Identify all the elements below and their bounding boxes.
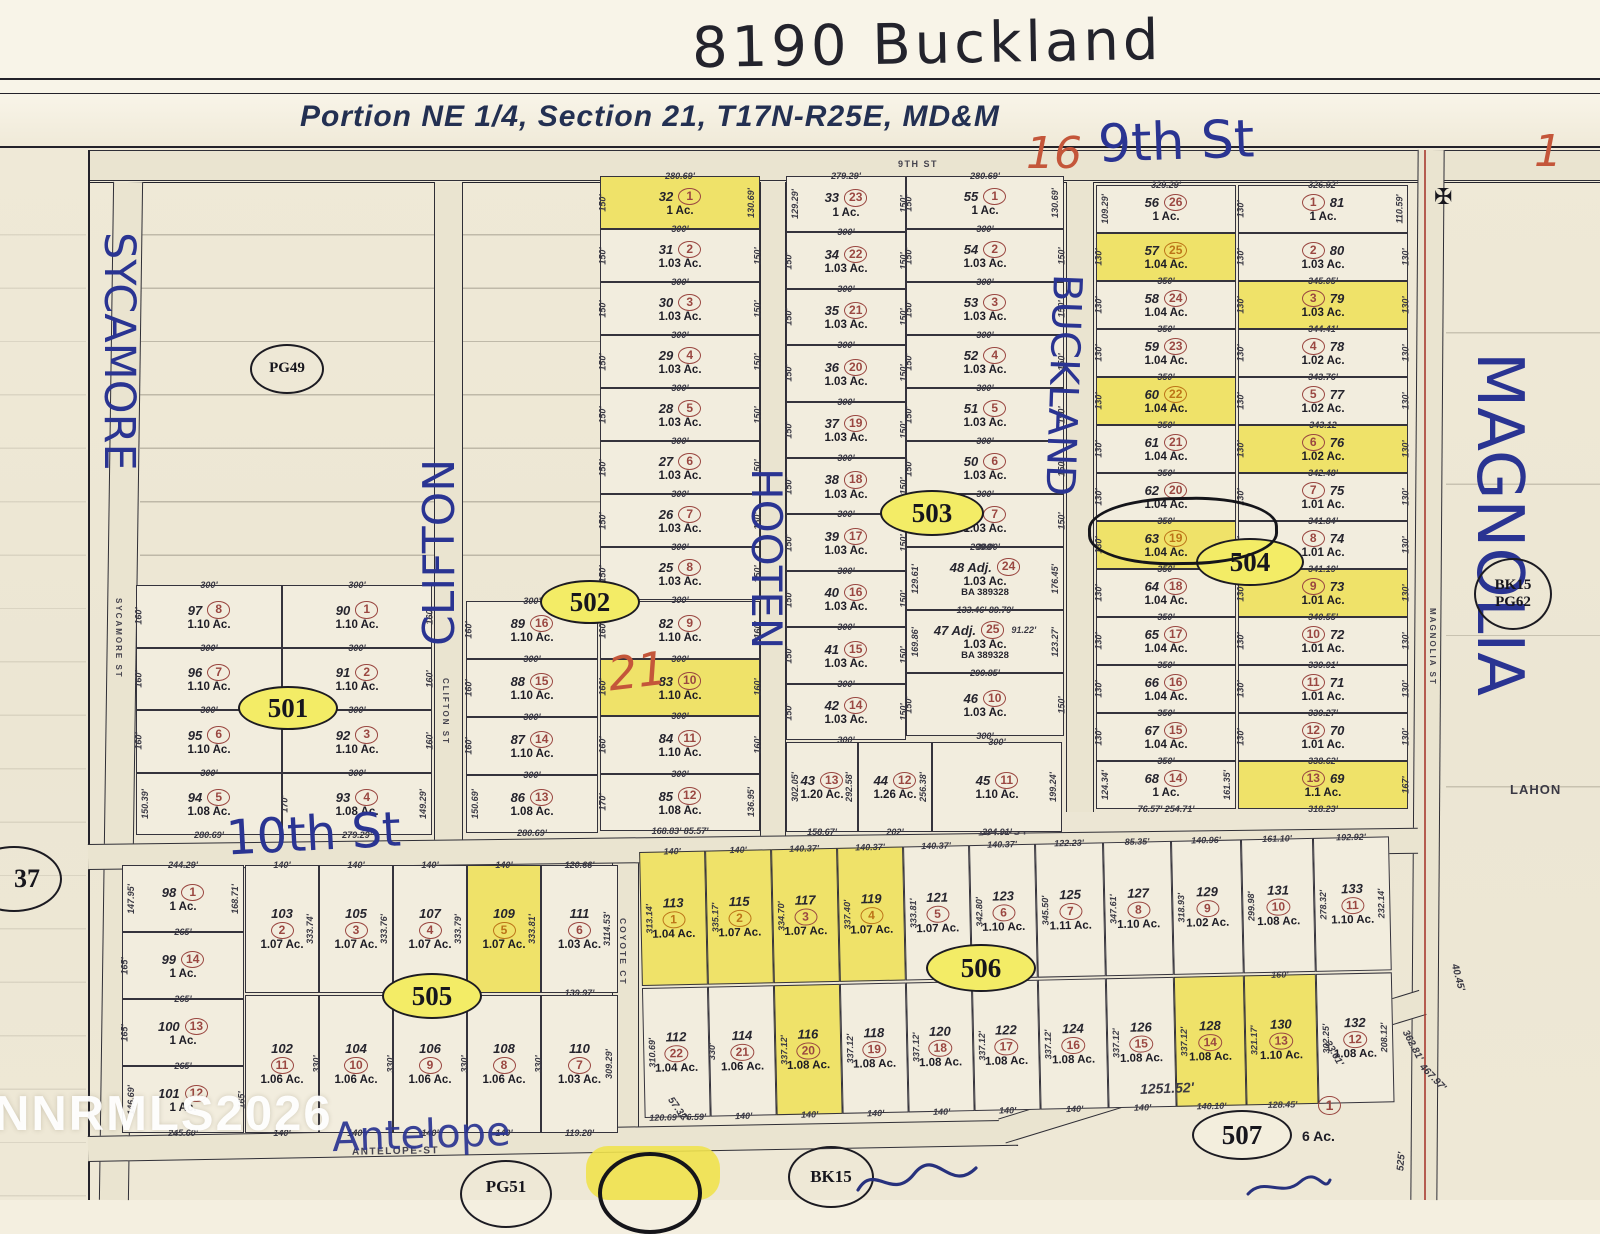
lot-parcel-120: 140'337.12'120181.08 Ac. xyxy=(906,981,975,1112)
block-oval-507: 507 xyxy=(1192,1110,1292,1160)
lot-parcel-125: 122.23'345.50'12571.11 Ac. xyxy=(1035,842,1106,977)
scanned-plat-page: 8190 Buckland Portion NE 1/4, Section 21… xyxy=(0,0,1600,1200)
ref-bk15-label: BK15 xyxy=(1495,577,1532,594)
lot-parcel-129: 140.96'318.93'12991.02 Ac. xyxy=(1171,839,1244,974)
ref-pg49-label: PG49 xyxy=(269,360,305,377)
watermark: NNRMLS2026 xyxy=(0,1086,333,1142)
lot-parcel-115: 140'335.17'11521.07 Ac. xyxy=(705,849,774,984)
lot-parcel-133: 192.92'278.32'232.14'133111.10 Ac. xyxy=(1313,836,1392,972)
handwritten-9th-st: 9th St xyxy=(1097,109,1255,174)
lot-parcel-113: 140'313.14'11311.04 Ac. xyxy=(639,851,708,986)
ref-bk15-bottom-label: BK15 xyxy=(810,1167,852,1187)
pen-circle-lot-63 xyxy=(1087,495,1278,566)
lot-507-acreage: 6 Ac. xyxy=(1302,1129,1335,1143)
ref-circle-bk15-pg62: BK15 PG62 xyxy=(1474,558,1552,630)
dim-525: 525' xyxy=(1395,1152,1408,1172)
handwritten-clifton: CLIFTON xyxy=(414,296,465,646)
ref-37-label: 37 xyxy=(14,864,40,894)
block-oval-506: 506 xyxy=(926,944,1036,992)
lot-parcel-130: 160'128.45'321.17'130131.10 Ac. xyxy=(1244,974,1319,1105)
lot-parcel-118: 140'337.12'118191.08 Ac. xyxy=(840,982,909,1113)
block-oval-505: 505 xyxy=(382,973,482,1019)
magnolia-street-red-line xyxy=(1424,150,1426,1200)
handwritten-antelope: Antelope xyxy=(331,1109,511,1161)
handwritten-sycamore: SYCAMORE xyxy=(94,232,144,642)
ref-pg51-label: PG51 xyxy=(486,1177,527,1197)
ref-circle-pg51: PG51 xyxy=(460,1160,552,1228)
lot-parcel-131: 161.10'299.98'131101.08 Ac. xyxy=(1241,838,1316,973)
handwritten-21: 21 xyxy=(605,641,670,702)
handwritten-16: 16 xyxy=(1026,128,1082,179)
survey-cross-icon: ✠ xyxy=(1434,184,1452,210)
ref-circle-pg49: PG49 xyxy=(250,344,324,394)
lot-parcel-117: 140.37'334.70'11731.07 Ac. xyxy=(771,848,840,983)
lot-parcel-119: 140.37'337.40'11941.07 Ac. xyxy=(837,847,906,982)
ref-pg62-label: PG62 xyxy=(1495,594,1531,611)
lot-parcel-127: 85.35'347.61'12781.10 Ac. xyxy=(1103,841,1174,976)
handwritten-hooten: HOOTEN xyxy=(742,468,791,838)
handwritten-1: 1 xyxy=(1534,126,1562,177)
handwritten-magnolia: MAGNOLIA xyxy=(1462,352,1536,1052)
pen-blob-bottom xyxy=(598,1152,702,1234)
lot-parcel-122: 140'337.12'122171.08 Ac. xyxy=(972,980,1041,1111)
lot-parcel-114: 140'330'114211.06 Ac. xyxy=(708,985,777,1116)
lot-parcel-116: 140'337.12'116201.08 Ac. xyxy=(774,984,843,1115)
handwritten-10th-st: 10th St xyxy=(225,801,403,866)
block-oval-501: 501 xyxy=(238,686,338,730)
lot-parcel-132: 302.25'208.12'132121.08 Ac. xyxy=(1316,972,1395,1104)
lot-parcel-124: 140'337.12'124161.08 Ac. xyxy=(1038,978,1109,1109)
dim-1251-52: 1251.52' xyxy=(1140,1079,1194,1097)
pen-squiggle-bottom xyxy=(852,1158,982,1202)
block-506-layer: 140'313.14'11311.04 Ac.140'335.17'11521.… xyxy=(0,0,1600,1213)
block-oval-503: 503 xyxy=(880,490,984,536)
block-oval-502: 502 xyxy=(540,580,640,624)
pen-squiggle-bottom-right xyxy=(1244,1174,1334,1200)
